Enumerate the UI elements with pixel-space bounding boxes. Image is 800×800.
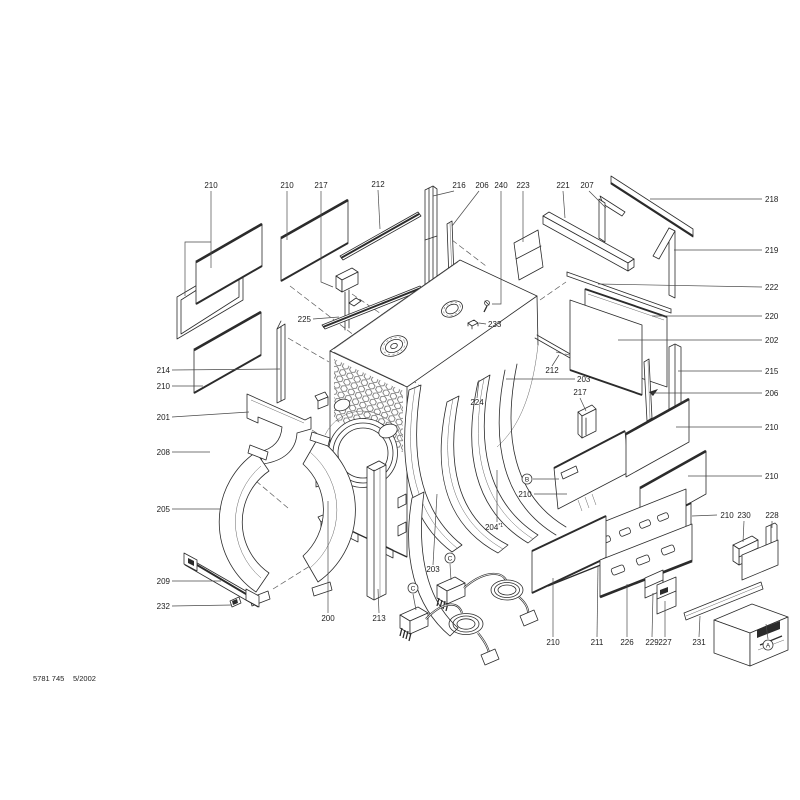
part-label-233: 233 [488, 320, 502, 329]
part-label-210: 210 [204, 181, 218, 190]
part-label-227: 227 [658, 638, 672, 647]
callout-letter-C: C [411, 585, 416, 592]
harness-end-connector-2 [481, 649, 499, 665]
part-label-215: 215 [765, 367, 779, 376]
top-edge-clip [349, 298, 361, 306]
rear-trim-parts [535, 176, 693, 424]
leader-211 [597, 566, 598, 637]
part-label-230: 230 [737, 511, 751, 520]
bracket-223 [514, 230, 543, 280]
part-label-229: 229 [645, 638, 659, 647]
exploded-parts-diagram: 2102102172122162062402232212072182192222… [0, 0, 800, 800]
leader-230 [743, 521, 744, 542]
slotted-panel-210-b [554, 431, 629, 511]
part-label-212: 212 [371, 180, 385, 189]
part-label-208: 208 [157, 448, 171, 457]
bracket-217-right [578, 405, 596, 438]
part-label-225: 225 [298, 315, 312, 324]
part-label-206: 206 [765, 389, 779, 398]
part-label-205: 205 [157, 505, 171, 514]
harness-end-connector-1 [520, 610, 538, 626]
leader-221 [563, 191, 565, 218]
part-label-213: 213 [372, 614, 386, 623]
callout-letter-A: A [766, 642, 771, 649]
part-label-219: 219 [765, 246, 779, 255]
leader-callout-C [450, 564, 451, 580]
harness-connector-2 [400, 607, 428, 641]
part-label-201: 201 [157, 413, 171, 422]
part-label-220: 220 [765, 312, 779, 321]
strip-212-top [340, 212, 421, 260]
part-label-231: 231 [692, 638, 706, 647]
part-label-204: 204*1 [485, 523, 503, 532]
part-label-207: 207 [580, 181, 594, 190]
leader-222 [598, 284, 762, 287]
leader-217 [580, 398, 586, 411]
control-panel [714, 604, 788, 666]
part-label-240: 240 [494, 181, 508, 190]
part-label-203: 203 [426, 565, 440, 574]
part-label-200: 200 [321, 614, 335, 623]
corner-angle-219 [653, 228, 675, 298]
corner-angle-207 [599, 196, 625, 242]
doc-number: 5781 745 [33, 674, 64, 683]
leader-225 [313, 317, 339, 319]
leader-212 [552, 355, 559, 366]
corner-strip-214 [277, 321, 285, 403]
panel-210-bottom [532, 516, 606, 593]
part-label-216: 216 [452, 181, 466, 190]
part-label-209: 209 [157, 577, 171, 586]
callout-letter-B: B [525, 476, 529, 483]
doc-date: 5/2002 [73, 674, 96, 683]
leader-212 [378, 190, 380, 229]
part-label-218: 218 [765, 195, 779, 204]
bar-221 [543, 212, 634, 271]
footer: 5781 745 5/2002 [33, 674, 96, 683]
part-label-203: 203 [577, 375, 591, 384]
leader-201 [172, 412, 249, 417]
leader-callout-C [413, 594, 416, 610]
part-label-202: 202 [765, 336, 779, 345]
part-label-210: 210 [765, 423, 779, 432]
panel-210-b [194, 312, 261, 393]
part-label-223: 223 [516, 181, 530, 190]
part-label-212: 212 [545, 366, 559, 375]
harness-connector-1 [437, 577, 465, 611]
panel-210-c [281, 200, 348, 281]
part-label-224: 224 [470, 398, 484, 407]
part-label-221: 221 [556, 181, 570, 190]
part-label-228: 228 [765, 511, 779, 520]
leader-231 [699, 616, 700, 637]
leader-229 [652, 593, 653, 637]
part-label-222: 222 [765, 283, 779, 292]
part-label-217: 217 [314, 181, 328, 190]
leader-206 [452, 191, 479, 226]
part-label-210: 210 [720, 511, 734, 520]
clip-232 [230, 597, 241, 607]
part-label-210: 210 [518, 490, 532, 499]
part-label-214: 214 [157, 366, 171, 375]
part-label-211: 211 [591, 638, 604, 647]
part-label-217: 217 [573, 388, 587, 397]
insulation-panels-left [177, 200, 348, 393]
part-label-210: 210 [765, 472, 779, 481]
leader-210 [692, 515, 717, 516]
part-label-226: 226 [620, 638, 634, 647]
post-213 [367, 461, 386, 600]
part-label-232: 232 [157, 602, 171, 611]
part-label-210: 210 [280, 181, 294, 190]
part-label-210: 210 [157, 382, 171, 391]
part-label-206: 206 [475, 181, 489, 190]
leader-232 [172, 605, 232, 606]
callout-letter-C: C [448, 555, 453, 562]
part-label-210: 210 [546, 638, 560, 647]
